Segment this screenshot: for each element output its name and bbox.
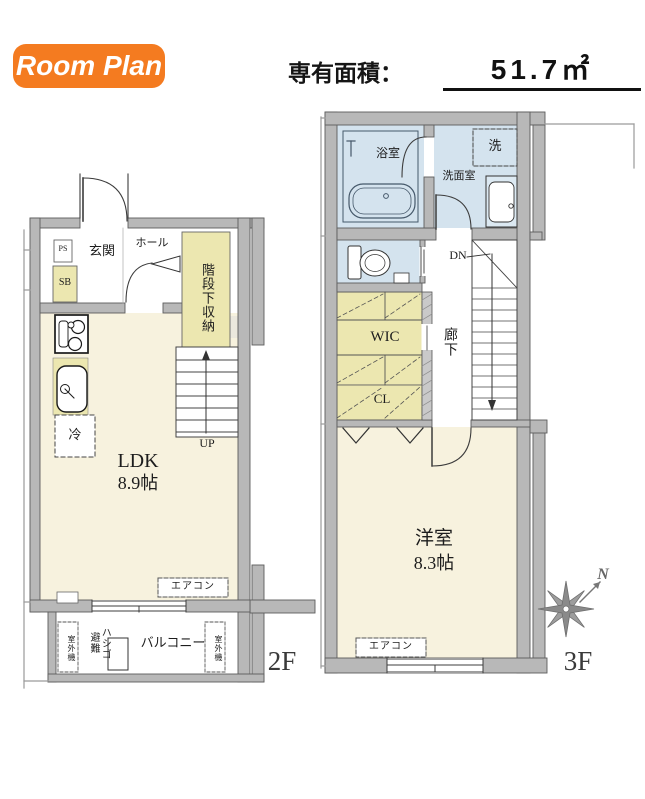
f2-ps-label: PS xyxy=(54,245,72,254)
room-plan-page: Room Plan 専有面積： 51.7㎡ xyxy=(0,0,645,799)
f2-fridge-label: 冷 xyxy=(55,428,95,443)
f3-aircon-label: エアコン xyxy=(356,641,426,652)
f2-outdoor-unit-right-label: 室外機 xyxy=(208,628,222,668)
f2-genkan-label: 玄関 xyxy=(78,244,126,259)
f2-sb-label: SB xyxy=(53,277,77,288)
f3-wic-label: WIC xyxy=(361,329,409,346)
f3-stairs xyxy=(467,240,517,420)
f3-bedroom-label: 洋室 xyxy=(404,528,464,549)
f2-escape-ladder-label-1: 避難 xyxy=(88,612,99,674)
f2-balcony-label: バルコニー xyxy=(126,636,220,651)
exclusive-area-value: 51.7㎡ xyxy=(443,48,641,91)
f3-bathroom-label: 浴室 xyxy=(366,147,410,160)
f3-toilet-door xyxy=(420,247,426,276)
f3-wic-wall-hatched xyxy=(422,292,433,420)
f3-washroom-label: 洗面室 xyxy=(434,170,484,182)
f2-outdoor-unit-left-label: 室外機 xyxy=(61,628,75,668)
f2-escape-ladder-label: 避難 ハシゴ xyxy=(87,612,111,674)
f3-washer-label: 洗 xyxy=(473,139,517,154)
room-plan-badge: Room Plan xyxy=(13,44,165,88)
f3-bedroom-window xyxy=(387,658,483,673)
f2-under-stair-storage-label: 階段下収納 xyxy=(199,252,214,344)
exclusive-area-label: 専有面積： xyxy=(288,54,403,88)
f2-sink-icon xyxy=(53,358,88,415)
f2-up-label: UP xyxy=(192,437,222,450)
compass-north-label: N xyxy=(592,566,614,584)
f2-hall-label: ホール xyxy=(130,237,174,249)
floor-plan-graphics xyxy=(0,0,645,799)
room-plan-badge-label: Room Plan xyxy=(16,50,162,82)
f3-corridor-label: 廊下 xyxy=(440,318,457,366)
f3-dn-label: DN xyxy=(444,249,472,262)
compass-icon xyxy=(538,581,600,637)
f2-stairs xyxy=(176,347,238,437)
f2-ldk-size-label: 8.9帖 xyxy=(98,473,178,493)
f2-entrance-door xyxy=(80,174,128,221)
f3-vanity-icon xyxy=(486,176,517,227)
f3-floor-label: 3F xyxy=(552,646,604,676)
f2-escape-ladder-label-2: ハシゴ xyxy=(99,612,110,674)
f2-floor-label: 2F xyxy=(258,646,306,676)
f2-escape-hatch-icon xyxy=(108,638,128,670)
f2-aircon-label: エアコン xyxy=(158,581,228,592)
f2-stove-icon xyxy=(55,315,88,353)
f3-bedroom-size-label: 8.3帖 xyxy=(402,553,466,573)
f2-ldk-label: LDK xyxy=(98,450,178,472)
f3-closet-label: CL xyxy=(360,392,404,407)
